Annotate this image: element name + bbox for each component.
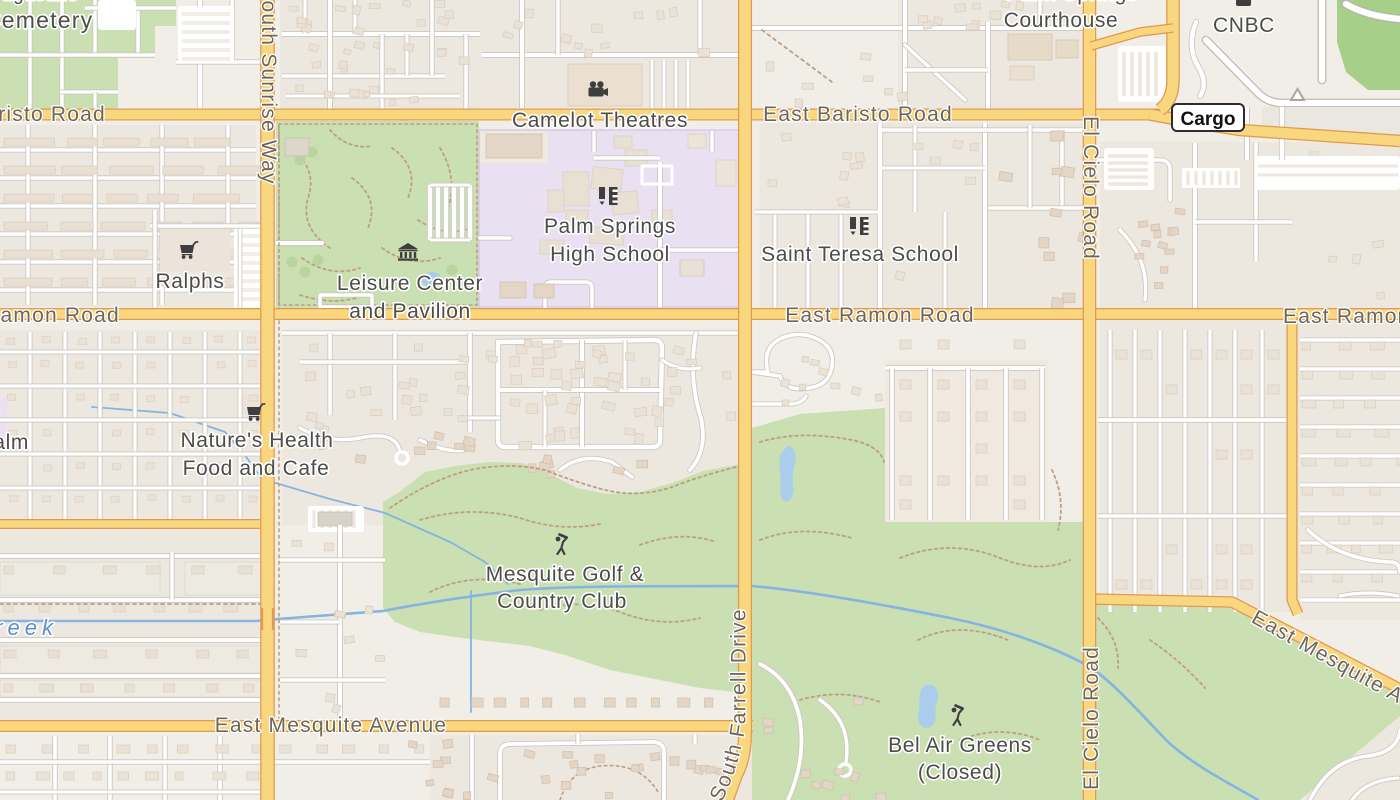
- svg-text:Palm Springs: Palm Springs: [1006, 0, 1138, 5]
- svg-text:High School: High School: [550, 243, 670, 266]
- svg-text:East Ramon Road: East Ramon Road: [1283, 305, 1400, 328]
- svg-text:Bel Air Greens: Bel Air Greens: [888, 734, 1032, 757]
- svg-text:El Cielo Road: El Cielo Road: [1080, 646, 1103, 790]
- svg-text:Cargo: Cargo: [1181, 109, 1236, 130]
- svg-text:and Pavilion: and Pavilion: [349, 300, 471, 323]
- svg-text:Country Club: Country Club: [497, 590, 627, 613]
- svg-text:Nature's Health: Nature's Health: [180, 429, 333, 452]
- svg-text:Leisure Center: Leisure Center: [337, 272, 483, 295]
- svg-text:Palm: Palm: [0, 431, 29, 454]
- svg-text:East Mesquite Avenue: East Mesquite Avenue: [215, 714, 448, 737]
- svg-text:East Baristo Road: East Baristo Road: [763, 103, 953, 126]
- svg-text:Creek: Creek: [0, 615, 58, 640]
- svg-text:Ramon Road: Ramon Road: [0, 304, 120, 327]
- svg-text:Camelot Theatres: Camelot Theatres: [512, 109, 688, 132]
- svg-text:East Ramon Road: East Ramon Road: [785, 304, 975, 327]
- svg-text:CNBC: CNBC: [1213, 14, 1275, 37]
- svg-text:Mesquite Golf &: Mesquite Golf &: [486, 563, 644, 586]
- svg-text:Ralphs: Ralphs: [156, 270, 225, 293]
- svg-text:Courthouse: Courthouse: [1004, 9, 1119, 32]
- svg-text:Baristo Road: Baristo Road: [0, 103, 106, 126]
- svg-text:Palm Springs: Palm Springs: [544, 215, 676, 238]
- svg-text:El Cielo Road: El Cielo Road: [1079, 116, 1102, 260]
- svg-text:(Closed): (Closed): [918, 761, 1002, 784]
- svg-text:ugustine: ugustine: [2, 0, 79, 5]
- svg-text:Cemetery: Cemetery: [0, 7, 93, 33]
- svg-text:Food and Cafe: Food and Cafe: [183, 457, 330, 480]
- svg-text:Saint Teresa School: Saint Teresa School: [761, 243, 959, 266]
- svg-text:South Sunrise Way: South Sunrise Way: [257, 0, 280, 185]
